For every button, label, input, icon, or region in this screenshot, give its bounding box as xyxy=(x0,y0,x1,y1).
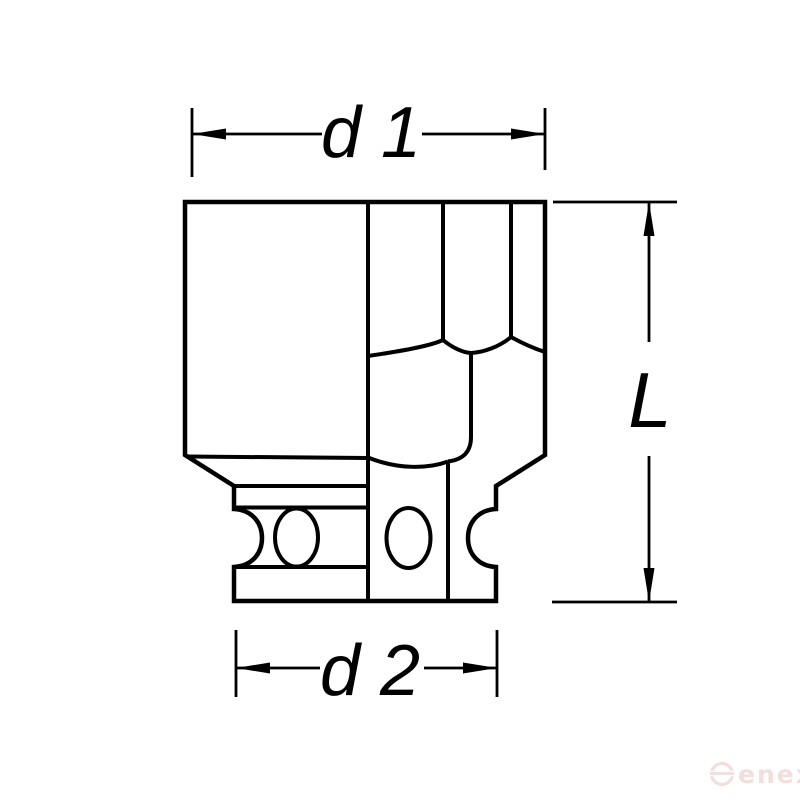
socket-drawing: d 1 L d 2 xyxy=(0,0,800,800)
length-arrowhead-top xyxy=(644,202,655,236)
dimension-d1: d 1 xyxy=(192,93,545,177)
length-label: L xyxy=(628,356,671,444)
d1-arrowhead-right xyxy=(511,129,545,140)
d1-arrowhead-left xyxy=(192,129,226,140)
dimension-d2: d 2 xyxy=(236,630,497,711)
length-arrowhead-bottom xyxy=(644,568,655,602)
face-blend-curve-middle xyxy=(443,337,511,353)
d2-arrowhead-left xyxy=(236,663,270,674)
enex-logo-icon xyxy=(710,764,734,785)
technical-drawing-page: d 1 L d 2 xyxy=(0,0,800,800)
pin-hole-left-ellipse xyxy=(275,509,318,567)
d2-label: d 2 xyxy=(320,631,420,711)
face-blend-curve-left xyxy=(368,340,443,356)
body-bottom-edge-line xyxy=(187,457,368,459)
d1-label: d 1 xyxy=(321,93,421,173)
pin-hole-right-ellipse xyxy=(387,508,431,568)
dimension-length: L xyxy=(552,202,677,602)
socket-part xyxy=(185,202,545,601)
watermark-text: enex xyxy=(738,760,800,789)
neck-blend-edge xyxy=(448,353,471,462)
d2-arrowhead-right xyxy=(463,663,497,674)
watermark: enex xyxy=(710,760,800,789)
socket-outline xyxy=(185,202,545,601)
body-neck-arc xyxy=(368,458,448,467)
face-blend-curve-right xyxy=(511,337,545,352)
